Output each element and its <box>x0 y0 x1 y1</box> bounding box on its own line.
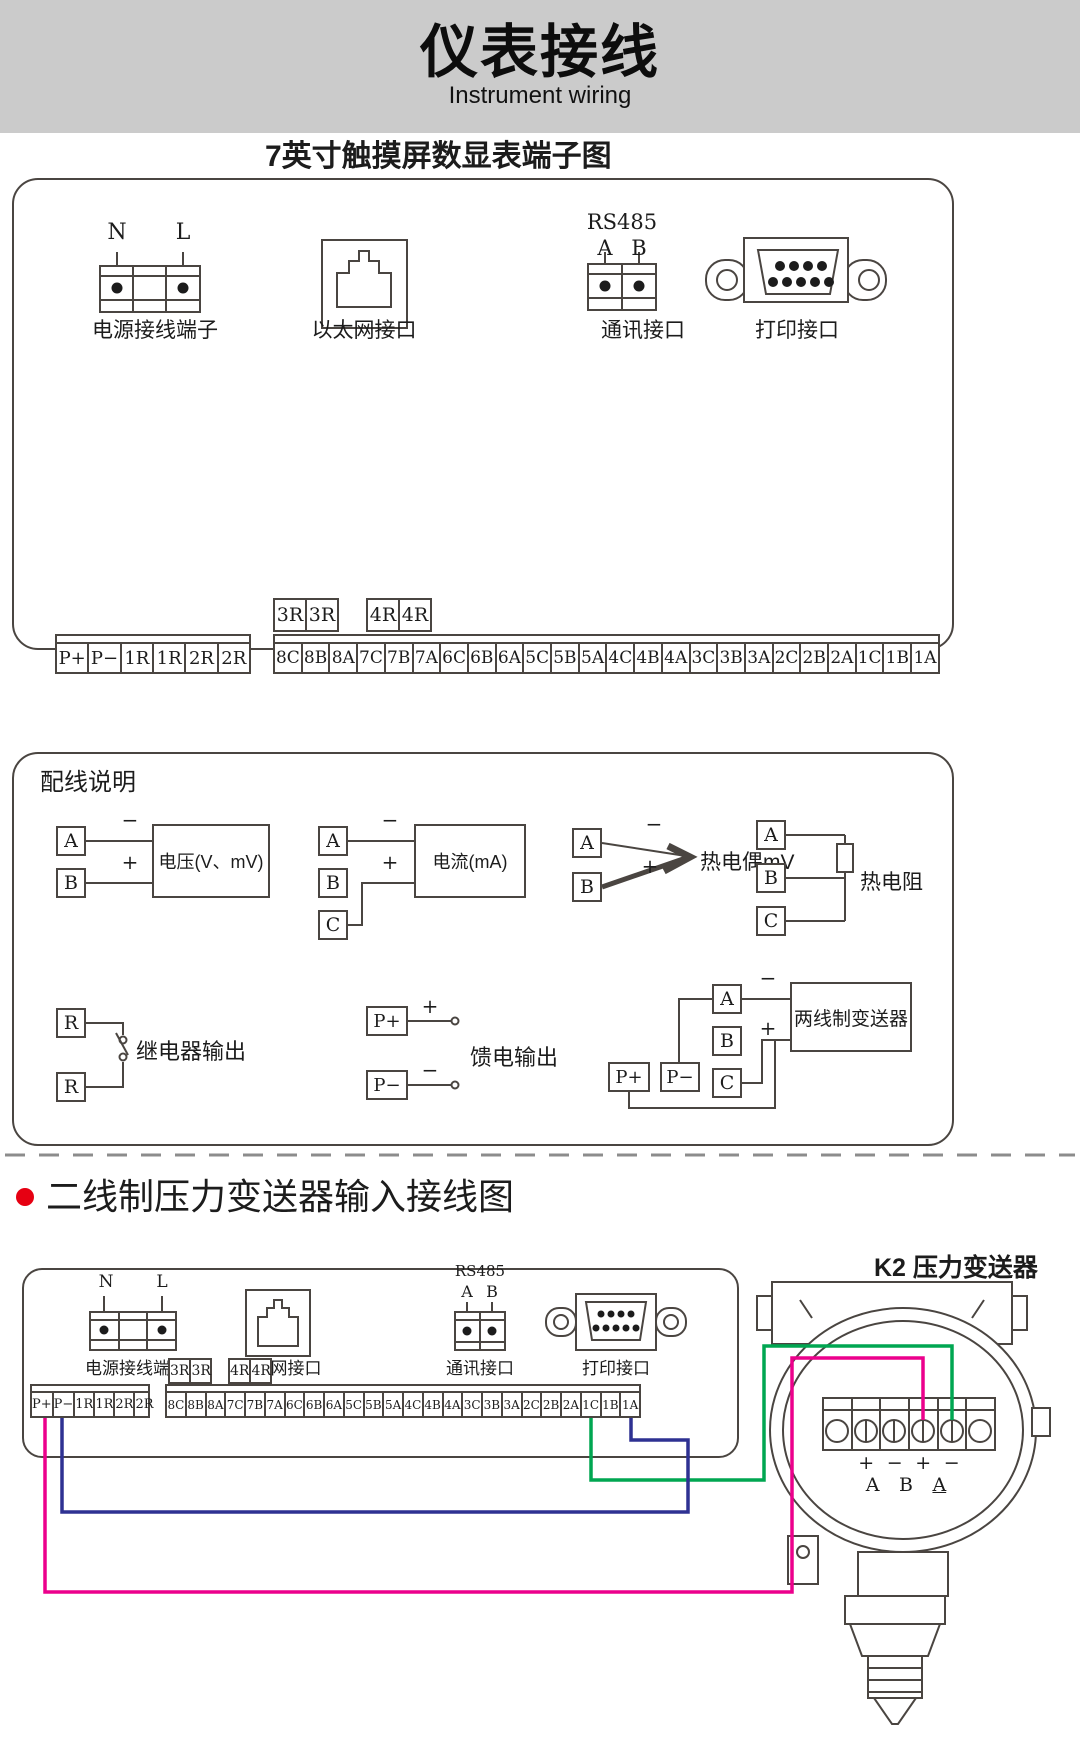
terminal-cell: 7A <box>264 1393 284 1416</box>
comm-label: 通讯接口 <box>599 314 687 344</box>
relay-terminal: 3R <box>189 1360 210 1382</box>
terminal-cell: 8B <box>301 644 329 672</box>
terminal-cell: 5A <box>578 644 606 672</box>
relay-terminal: 4R <box>398 600 430 630</box>
terminal-cell: 8C <box>275 644 301 672</box>
terminal-cell: P− <box>52 1393 74 1416</box>
ethernet-label: 以太网接口 <box>308 314 420 344</box>
relay-terminal-r1: R <box>56 1008 86 1038</box>
terminal-cell: 1R <box>93 1393 113 1416</box>
twowire-terminal-b: B <box>712 1026 742 1056</box>
current-input-box: 电流(mA) <box>414 824 526 898</box>
voltage-input-box: 电压(V、mV) <box>152 824 270 898</box>
current-terminal-a: A <box>318 826 348 856</box>
terminal-cell: 1C <box>855 644 883 672</box>
terminal-cell: 7B <box>384 644 412 672</box>
strip-band <box>275 636 938 644</box>
twowire-terminal-a: A <box>712 984 742 1014</box>
relay-label: 继电器输出 <box>136 1034 246 1066</box>
transmitter-sign-row: +−+− <box>852 1452 966 1474</box>
relay-terminal: 4R <box>230 1360 249 1382</box>
page-banner: 仪表接线 Instrument wiring <box>0 0 1080 133</box>
power-pin-n: N <box>105 220 129 245</box>
rtd-terminal-a: A <box>756 820 786 850</box>
terminal-cell: 1B <box>600 1393 620 1416</box>
tc-terminal-a: A <box>572 828 602 858</box>
terminal-cell: 6A <box>495 644 523 672</box>
feed-terminal-pplus: P+ <box>366 1006 408 1036</box>
rs485-label-small: RS485 <box>452 1262 508 1280</box>
rs485-pin-b-small: B <box>483 1282 501 1301</box>
print-label-small: 打印接口 <box>580 1354 652 1379</box>
tc-plus-sign: + <box>638 854 662 878</box>
strip-band <box>167 1386 639 1393</box>
rtd-label: 热电阻 <box>860 866 923 896</box>
strip-band <box>57 636 249 644</box>
section3-heading: 二线制压力变送器输入接线图 <box>46 1168 514 1220</box>
terminal-cell: 6C <box>284 1393 304 1416</box>
terminal-cell: 2B <box>799 644 827 672</box>
section1-heading: 7英寸触摸屏数显表端子图 <box>265 131 612 175</box>
terminal-cell: 7C <box>356 644 384 672</box>
relay-4r-pair: 4R4R <box>366 598 432 632</box>
power-pin-n-small: N <box>96 1272 116 1292</box>
terminal-cell: 1R <box>152 644 184 672</box>
relay-terminal: 4R <box>249 1360 270 1382</box>
terminal-cell: 3C <box>689 644 717 672</box>
tc-terminal-b: B <box>572 872 602 902</box>
terminal-cell: 2A <box>560 1393 580 1416</box>
terminal-cell: 5B <box>363 1393 383 1416</box>
current-terminal-b: B <box>318 868 348 898</box>
transmitter-letter: A <box>856 1474 889 1496</box>
rs485-pin-a: A <box>593 236 617 260</box>
power-pin-l: L <box>171 220 195 245</box>
voltage-minus-sign: − <box>118 808 142 832</box>
terminal-cell: 6A <box>323 1393 343 1416</box>
terminal-cell: 3C <box>461 1393 481 1416</box>
terminal-cell: 4C <box>402 1393 422 1416</box>
terminal-cell: 1A <box>910 644 938 672</box>
terminal-cell: 1C <box>580 1393 600 1416</box>
terminal-cell: 7B <box>244 1393 264 1416</box>
terminal-cell: 2R <box>217 644 249 672</box>
transmitter-device-label: K2 压力变送器 <box>874 1248 1038 1284</box>
terminal-cell: 4B <box>422 1393 442 1416</box>
transmitter-letter: B <box>889 1474 922 1496</box>
rs485-label: RS485 <box>586 210 658 234</box>
terminal-cell: 1R <box>73 1393 93 1416</box>
terminal-cell: 1R <box>120 644 152 672</box>
voltage-terminal-b: B <box>56 868 86 898</box>
page-subtitle: Instrument wiring <box>449 82 632 110</box>
twowire-plus-sign: + <box>756 1016 780 1040</box>
right-terminal-strip: 8C8B8A7C7B7A6C6B6A5C5B5A4C4B4A3C3B3A2C2B… <box>273 634 940 674</box>
feed-label: 馈电输出 <box>470 1040 558 1072</box>
terminal-cell: 3B <box>716 644 744 672</box>
twowire-transmitter-box: 两线制变送器 <box>790 982 912 1052</box>
rs485-pin-a-small: A <box>458 1282 476 1301</box>
terminal-cell: 3A <box>744 644 772 672</box>
relay-4r-pair-small: 4R4R <box>228 1358 272 1384</box>
feed-terminal-pminus: P− <box>366 1070 408 1100</box>
terminal-cell: 3A <box>501 1393 521 1416</box>
terminal-cell: 8B <box>185 1393 205 1416</box>
twowire-terminal-pminus: P− <box>660 1062 700 1092</box>
terminal-cell: 2C <box>772 644 800 672</box>
terminal-cell: 2C <box>521 1393 541 1416</box>
terminal-cell: 3B <box>481 1393 501 1416</box>
left-terminal-strip-small: P+P−1R1R2R2R <box>30 1384 150 1418</box>
transmitter-sign: − <box>881 1452 910 1474</box>
power-label: 电源接线端子 <box>90 314 220 344</box>
wiring-notes-box <box>12 752 954 1146</box>
terminal-cell: 5C <box>343 1393 363 1416</box>
page-title: 仪表接线 <box>420 23 660 84</box>
red-bullet-icon <box>16 1188 34 1206</box>
transmitter-sign: + <box>909 1452 938 1474</box>
terminal-cell: 1A <box>619 1393 639 1416</box>
instrument-wiring-page: { "banner": { "title": "仪表接线", "subtitle… <box>0 0 1080 1742</box>
terminal-cell: 4A <box>442 1393 462 1416</box>
terminal-cell: 8A <box>328 644 356 672</box>
voltage-terminal-a: A <box>56 826 86 856</box>
terminal-cell: 2A <box>827 644 855 672</box>
feed-minus-sign: − <box>418 1058 442 1082</box>
relay-terminal: 3R <box>170 1360 189 1382</box>
rtd-terminal-c: C <box>756 906 786 936</box>
terminal-cell: 2R <box>133 1393 153 1416</box>
terminal-cell: 7A <box>412 644 440 672</box>
relay-terminal: 3R <box>305 600 337 630</box>
transmitter-sign: + <box>852 1452 881 1474</box>
terminal-cell: 5C <box>522 644 550 672</box>
terminal-cell: P+ <box>57 644 87 672</box>
relay-3r-pair: 3R3R <box>273 598 339 632</box>
twowire-minus-sign: − <box>756 966 780 990</box>
terminal-cell: 1B <box>882 644 910 672</box>
terminal-cell: 4B <box>633 644 661 672</box>
relay-3r-pair-small: 3R3R <box>168 1358 212 1384</box>
right-terminal-strip-small: 8C8B8A7C7B7A6C6B6A5C5B5A4C4B4A3C3B3A2C2B… <box>165 1384 641 1418</box>
relay-terminal-r2: R <box>56 1072 86 1102</box>
terminal-cell: 8C <box>167 1393 185 1416</box>
feed-plus-sign: + <box>418 994 442 1018</box>
section2-heading: 配线说明 <box>40 762 136 797</box>
left-terminal-strip: P+P−1R1R2R2R <box>55 634 251 674</box>
transmitter-letter: A <box>923 1474 956 1496</box>
twowire-terminal-c: C <box>712 1068 742 1098</box>
terminal-cell: 2B <box>540 1393 560 1416</box>
rs485-pin-b: B <box>627 236 651 260</box>
comm-label-small: 通讯接口 <box>444 1354 516 1379</box>
terminal-cell: 7C <box>224 1393 244 1416</box>
terminal-cell: 4A <box>661 644 689 672</box>
terminal-cell: P− <box>87 644 119 672</box>
transmitter-sign: − <box>938 1452 967 1474</box>
print-label: 打印接口 <box>753 314 841 344</box>
tc-minus-sign: − <box>642 812 666 836</box>
transmitter-letter-row: ABA <box>856 1474 956 1496</box>
relay-terminal: 4R <box>368 600 398 630</box>
terminal-cell: 2R <box>113 1393 133 1416</box>
relay-terminal: 3R <box>275 600 305 630</box>
terminal-cell: 6C <box>439 644 467 672</box>
terminal-diagram-box <box>12 178 954 650</box>
pressure-transmitter-drawing <box>757 1282 1050 1724</box>
voltage-plus-sign: + <box>118 850 142 874</box>
strip-band <box>32 1386 148 1393</box>
power-pin-l-small: L <box>152 1272 172 1292</box>
terminal-cell: 4C <box>605 644 633 672</box>
rtd-terminal-b: B <box>756 863 786 893</box>
current-minus-sign: − <box>378 808 402 832</box>
terminal-cell: 8A <box>205 1393 225 1416</box>
terminal-cell: 5A <box>382 1393 402 1416</box>
current-terminal-c: C <box>318 910 348 940</box>
terminal-cell: 6B <box>467 644 495 672</box>
current-plus-sign: + <box>378 850 402 874</box>
terminal-cell: P+ <box>32 1393 52 1416</box>
terminal-cell: 5B <box>550 644 578 672</box>
twowire-terminal-pplus: P+ <box>608 1062 650 1092</box>
terminal-cell: 6B <box>303 1393 323 1416</box>
terminal-cell: 2R <box>184 644 216 672</box>
